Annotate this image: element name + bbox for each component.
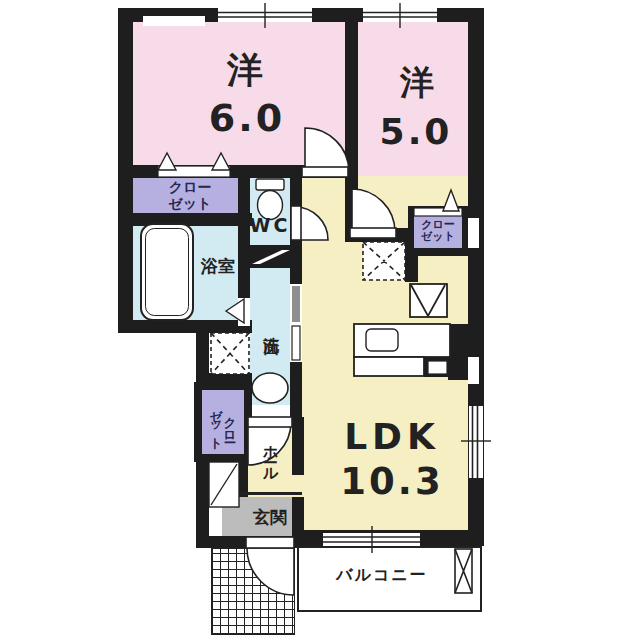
door-leaf <box>291 206 301 240</box>
closet-door-triangle <box>158 153 176 170</box>
washbasin-icon <box>252 373 288 403</box>
balcony-label: バルコニー <box>336 566 428 584</box>
bathtub-icon <box>141 224 193 320</box>
closet-label-line: クロー <box>169 179 212 195</box>
closet-door-triangle <box>443 190 459 211</box>
closet-label-line: ゼット <box>421 231 455 243</box>
wall-slot-right-upper <box>468 218 479 248</box>
closet-label-line: ゼット <box>209 401 223 444</box>
door-leaf <box>350 228 396 238</box>
closet-label-line: クロー <box>421 218 455 231</box>
door-leaf <box>248 417 292 427</box>
door-leaf <box>246 537 294 548</box>
room-western5-size: 5.0 <box>380 112 453 152</box>
room-ldk-label: LDK <box>344 417 440 457</box>
washroom-side-door <box>290 284 302 362</box>
bath-door-icon <box>226 299 244 323</box>
refrigerator-symbol <box>363 242 405 280</box>
door-entrance <box>246 537 294 595</box>
door-western6 <box>302 128 349 177</box>
window-western6 <box>218 3 312 28</box>
shoe-cabinet <box>209 462 239 507</box>
washroom-sliding-door <box>252 250 290 264</box>
room-washroom-label: 洗面 <box>262 324 280 330</box>
balcony-storage-symbol <box>455 549 472 593</box>
kitchen-counter <box>354 324 451 377</box>
closet-label-line: ゼット <box>169 196 212 212</box>
door-wc <box>291 206 328 240</box>
closet-door-triangle <box>212 153 230 170</box>
kitchen-equipment-symbol <box>410 284 447 317</box>
door-western5 <box>350 189 396 238</box>
room-wc-label: WC <box>250 215 291 236</box>
washing-machine-symbol <box>211 333 249 374</box>
door-leaf <box>302 167 348 177</box>
room-bath-label: 浴室 <box>201 257 235 276</box>
closet-west5-label: クロー ゼット <box>421 219 455 244</box>
room-western6-label: 洋 <box>227 50 263 90</box>
wall-slot-right-lower <box>468 357 479 384</box>
room-hall-label: ホール <box>262 436 279 476</box>
window-ldk-right <box>461 406 491 478</box>
closet-hall-label: クロー ゼット <box>209 401 237 444</box>
room-entrance-label: 玄関 <box>253 508 287 527</box>
fixtures-overlay <box>0 0 640 640</box>
room-western6-size: 6.0 <box>209 97 285 140</box>
room-western5-label: 洋 <box>400 63 434 101</box>
closet-west6-label: クロー ゼット <box>169 180 212 211</box>
floor-plan: 洋 6.0 洋 5.0 LDK 10.3 浴室 WC 洗面 ホール 玄関 バルコ… <box>0 0 640 640</box>
closet-label-line: クロー <box>223 401 237 444</box>
room-ldk-size: 10.3 <box>340 461 443 502</box>
balcony-sliding-door <box>323 526 420 553</box>
window-western5 <box>363 3 437 28</box>
wall-slot-top-left <box>143 16 205 26</box>
